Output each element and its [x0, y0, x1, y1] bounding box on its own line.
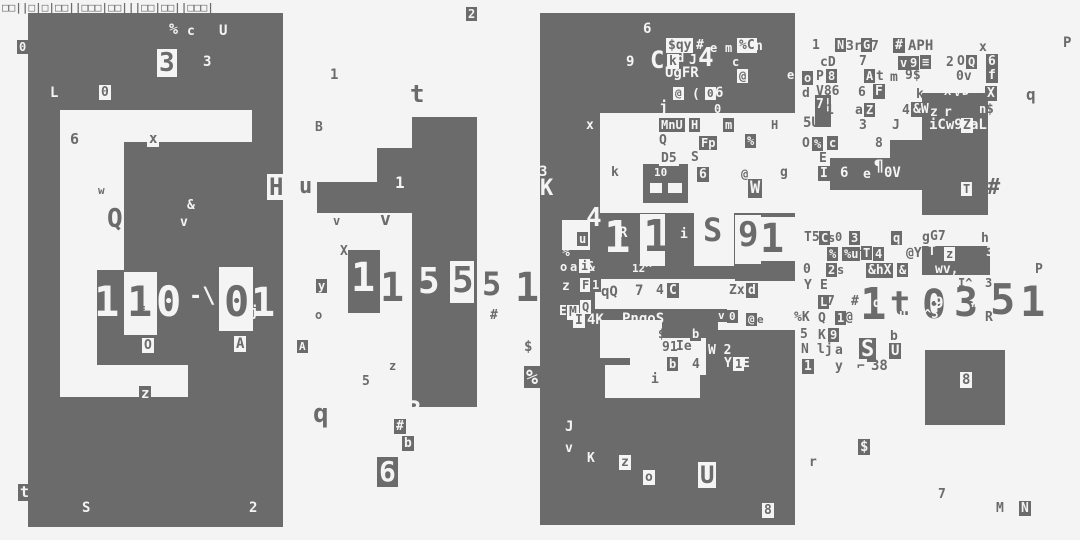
noise-glyph: 5: [362, 375, 370, 388]
noise-glyph: F: [873, 84, 885, 99]
noise-glyph: q: [891, 231, 902, 245]
noise-glyph: m: [725, 42, 732, 54]
noise-glyph: y: [735, 247, 742, 259]
noise-glyph: 1: [826, 104, 834, 117]
noise-glyph: o: [315, 309, 322, 321]
noise-glyph: 2: [826, 263, 837, 277]
noise-glyph: @: [845, 311, 853, 324]
noise-glyph: 1: [1020, 281, 1045, 323]
noise-glyph: 9: [828, 328, 839, 342]
noise-glyph: APH: [908, 39, 933, 53]
noise-glyph: @: [746, 313, 757, 326]
noise-glyph: c: [827, 136, 838, 150]
noise-glyph: 3: [859, 119, 867, 132]
noise-glyph: 8: [826, 69, 837, 83]
noise-glyph: #: [987, 177, 1000, 199]
noise-glyph: 0: [17, 40, 28, 54]
noise-glyph: F: [970, 177, 983, 199]
noise-glyph: lj: [817, 343, 833, 356]
noise-glyph: v: [380, 211, 391, 229]
noise-glyph: %: [169, 22, 178, 37]
noise-glyph: o: [802, 71, 813, 85]
noise-glyph: 7: [922, 215, 930, 228]
noise-glyph: ^3: [924, 308, 938, 320]
noise-glyph: 10: [654, 167, 667, 178]
noise-glyph: N: [801, 343, 809, 356]
noise-glyph: T: [861, 246, 872, 260]
noise-glyph: Q: [107, 206, 123, 232]
noise-glyph: %: [562, 246, 570, 259]
noise-glyph: %u: [842, 247, 860, 261]
noise-glyph: Y: [724, 357, 732, 370]
noise-glyph: %: [812, 137, 823, 151]
noise-block: [668, 183, 682, 193]
noise-glyph: aL: [970, 118, 987, 132]
noise-glyph: N: [1019, 501, 1031, 516]
noise-glyph: Ie: [676, 340, 692, 353]
noise-glyph: Zx: [729, 284, 745, 297]
noise-block: [377, 148, 477, 182]
noise-glyph: 0V: [884, 166, 901, 180]
noise-glyph: 8: [875, 137, 883, 150]
noise-glyph: E: [820, 279, 828, 292]
noise-glyph: t: [410, 82, 424, 106]
noise-glyph: y: [316, 279, 327, 293]
noise-glyph: 8: [960, 372, 972, 388]
noise-glyph: R: [985, 311, 993, 324]
noise-glyph: %C: [737, 38, 757, 53]
noise-glyph: 12^: [632, 263, 652, 274]
noise-glyph: &W: [911, 102, 931, 117]
noise-glyph: e: [863, 168, 871, 181]
noise-glyph: 1: [330, 68, 338, 82]
noise-block: [60, 270, 97, 397]
noise-glyph: #: [490, 309, 498, 322]
noise-glyph: Fp: [699, 136, 717, 150]
noise-glyph: v: [331, 214, 342, 228]
noise-glyph: 3: [986, 246, 994, 259]
noise-glyph: 8: [762, 503, 774, 518]
noise-glyph: 7: [827, 295, 835, 308]
noise-glyph: X: [340, 245, 348, 258]
noise-glyph: 7: [871, 40, 879, 53]
noise-glyph: 1: [760, 219, 784, 259]
noise-glyph: x: [586, 119, 594, 132]
noise-glyph: z: [944, 247, 955, 261]
noise-glyph: M: [996, 502, 1004, 515]
noise-glyph: ≡: [920, 55, 931, 69]
noise-glyph: g: [780, 166, 788, 179]
noise-glyph: 4: [698, 45, 714, 71]
noise-glyph: Q: [659, 134, 667, 147]
noise-glyph: 38: [871, 359, 888, 373]
noise-glyph: 1: [604, 216, 631, 260]
noise-glyph: d: [873, 297, 881, 310]
noise-glyph: P: [1063, 36, 1071, 50]
noise-glyph: 3: [157, 49, 177, 77]
noise-glyph: 4: [586, 205, 602, 231]
noise-glyph: 2: [249, 501, 257, 515]
noise-glyph: (: [692, 88, 700, 101]
noise-glyph: a: [855, 104, 863, 117]
noise-glyph: G7: [930, 230, 946, 243]
noise-glyph: m: [890, 71, 898, 84]
noise-glyph: 6: [377, 457, 398, 487]
noise-glyph: O: [957, 55, 965, 68]
noise-collage: □□||□|□|□□||□□□|□□|||□□|□□||□□□|0%cU33L0…: [0, 0, 1080, 540]
noise-glyph: &: [187, 199, 195, 212]
noise-glyph: 4: [873, 247, 884, 261]
noise-glyph: C: [667, 283, 679, 298]
noise-glyph: X: [985, 86, 997, 101]
noise-glyph: 2: [466, 7, 477, 21]
noise-glyph: u: [299, 176, 312, 198]
noise-glyph: q: [313, 401, 329, 427]
noise-glyph: E: [559, 305, 567, 318]
noise-glyph: 5: [990, 279, 1015, 321]
noise-glyph: 6: [858, 86, 866, 99]
noise-glyph: 0: [224, 281, 249, 323]
noise-glyph: v: [954, 87, 961, 98]
noise-glyph: a: [451, 247, 458, 259]
noise-glyph: PngoS: [622, 312, 664, 326]
noise-glyph: t: [876, 70, 884, 83]
noise-glyph: qQ: [601, 285, 618, 299]
noise-glyph: 9$: [905, 69, 921, 82]
noise-glyph: wv,: [935, 263, 958, 276]
noise-glyph: iCw9: [929, 118, 963, 132]
noise-glyph: A: [864, 69, 875, 83]
noise-glyph: 2: [946, 56, 954, 69]
noise-glyph: 6: [986, 54, 998, 69]
noise-glyph: 3: [407, 398, 421, 422]
noise-glyph: x: [979, 41, 987, 54]
noise-glyph: 4: [902, 104, 910, 117]
noise-glyph: Q: [818, 312, 826, 325]
noise-glyph: ¶: [874, 158, 884, 174]
noise-glyph: z: [619, 455, 631, 470]
noise-glyph: q: [1026, 87, 1036, 103]
noise-glyph: i: [651, 373, 659, 386]
noise-glyph: 1: [812, 39, 820, 52]
noise-glyph: Y: [804, 279, 812, 292]
noise-glyph: c: [732, 56, 739, 68]
noise-glyph: I: [573, 313, 585, 328]
noise-glyph: 5: [800, 328, 808, 341]
noise-glyph: Q: [966, 55, 977, 69]
noise-glyph: v: [565, 442, 573, 455]
noise-glyph: 4: [692, 358, 700, 371]
noise-glyph: 7: [938, 488, 946, 501]
noise-glyph: &hX: [866, 263, 893, 278]
noise-glyph: 1: [643, 215, 670, 259]
noise-glyph: u: [577, 232, 588, 246]
noise-glyph: S: [82, 501, 90, 515]
noise-glyph: U: [889, 343, 901, 359]
noise-glyph: %: [524, 366, 540, 388]
noise-glyph: $: [658, 328, 665, 340]
noise-glyph: @: [673, 87, 684, 100]
noise-glyph: h: [979, 231, 991, 246]
noise-glyph: #: [394, 419, 406, 434]
noise-glyph: T: [928, 245, 936, 258]
noise-glyph: $: [524, 340, 532, 354]
noise-glyph: t: [18, 484, 31, 501]
noise-glyph: C: [650, 48, 664, 72]
noise-glyph: i: [680, 228, 688, 241]
noise-glyph: 5: [418, 264, 440, 300]
noise-glyph: 5: [482, 268, 501, 300]
noise-glyph: A: [234, 336, 246, 352]
noise-glyph: H: [689, 118, 700, 132]
noise-glyph: @: [737, 69, 748, 83]
noise-glyph: J: [565, 420, 573, 434]
noise-glyph: b: [402, 436, 414, 451]
noise-glyph: A: [297, 340, 308, 353]
noise-glyph: -\: [189, 286, 216, 308]
noise-glyph: E: [742, 357, 750, 370]
noise-glyph: k: [611, 166, 619, 179]
noise-glyph: #: [851, 295, 859, 308]
noise-glyph: a: [835, 344, 843, 357]
noise-glyph: $: [858, 439, 870, 455]
noise-glyph: 6: [840, 166, 848, 180]
noise-glyph: 6: [68, 131, 81, 148]
noise-glyph: N: [835, 38, 846, 52]
noise-glyph: #: [893, 38, 905, 53]
noise-block: [650, 183, 662, 193]
noise-glyph: cD: [820, 56, 836, 69]
noise-glyph: W: [748, 179, 762, 198]
noise-glyph: H: [771, 119, 778, 131]
noise-glyph: 0: [714, 103, 721, 115]
noise-glyph: b: [667, 357, 678, 371]
noise-glyph: r: [809, 456, 817, 469]
noise-glyph: m: [723, 118, 734, 132]
noise-glyph: e: [787, 69, 794, 81]
noise-glyph: I: [818, 166, 830, 181]
noise-glyph: $: [986, 103, 994, 116]
noise-glyph: k: [916, 88, 924, 101]
noise-glyph: E: [819, 152, 827, 165]
noise-glyph: 0v: [956, 70, 972, 83]
noise-glyph: 0: [156, 281, 181, 323]
noise-glyph: D5: [659, 151, 679, 166]
noise-glyph: H: [267, 174, 285, 200]
noise-glyph: 3r: [846, 40, 862, 53]
noise-glyph: J: [892, 119, 900, 132]
noise-glyph: 7: [635, 284, 643, 298]
noise-glyph: 1: [395, 175, 405, 191]
noise-glyph: 0: [727, 310, 738, 323]
noise-glyph: K: [587, 452, 595, 465]
noise-glyph: 6: [715, 86, 723, 100]
noise-glyph: MnU: [659, 118, 685, 132]
noise-glyph: y: [835, 360, 843, 373]
noise-glyph: 7: [859, 55, 867, 68]
noise-glyph: 6: [697, 167, 709, 182]
noise-glyph: x: [147, 131, 159, 147]
noise-glyph: UgFR: [665, 66, 699, 80]
noise-glyph: e: [757, 314, 764, 325]
noise-glyph: O: [142, 338, 154, 353]
noise-glyph: #: [748, 247, 755, 258]
noise-glyph: D: [962, 85, 969, 97]
noise-glyph: b: [890, 330, 898, 343]
noise-glyph: ⌐: [855, 359, 867, 374]
noise-glyph: z: [562, 280, 570, 293]
noise-glyph: 1: [802, 359, 814, 374]
noise-glyph: 5: [452, 263, 474, 299]
noise-glyph: v: [716, 309, 727, 322]
noise-glyph: %: [745, 134, 756, 148]
noise-glyph: @Yr: [906, 247, 929, 260]
noise-glyph: f: [986, 68, 998, 83]
noise-glyph: 1: [94, 281, 119, 323]
noise-glyph: d: [802, 87, 810, 100]
noise-glyph: c: [187, 25, 195, 38]
noise-glyph: 4: [656, 284, 664, 297]
noise-glyph: □□||□|□|□□||□□□|□□|||□□|□□||□□□|: [2, 2, 214, 13]
noise-glyph: 4K: [587, 313, 604, 327]
noise-glyph: 9: [626, 55, 634, 69]
noise-glyph: Z: [864, 103, 875, 117]
noise-glyph: f: [138, 306, 146, 319]
noise-glyph: 6: [643, 22, 651, 36]
noise-glyph: w: [904, 279, 911, 290]
noise-glyph: %: [827, 247, 838, 261]
noise-glyph: &: [587, 261, 595, 274]
noise-glyph: P: [1035, 263, 1043, 276]
noise-glyph: 0: [803, 263, 811, 276]
noise-glyph: 1: [590, 278, 601, 292]
noise-glyph: K: [540, 178, 553, 200]
noise-glyph: d: [746, 283, 758, 298]
noise-glyph: o: [560, 261, 567, 273]
noise-glyph: L: [50, 86, 58, 100]
noise-glyph: K: [818, 329, 826, 342]
noise-glyph: w: [98, 185, 105, 196]
noise-glyph: 1: [351, 258, 375, 298]
noise-glyph: j: [659, 100, 668, 115]
noise-glyph: O: [802, 137, 810, 150]
noise-glyph: %K: [794, 311, 810, 324]
noise-glyph: #|: [971, 297, 987, 310]
noise-glyph: n: [755, 40, 763, 53]
noise-glyph: 3: [203, 55, 211, 69]
noise-glyph: &: [897, 263, 908, 277]
noise-glyph: S: [703, 214, 722, 246]
noise-glyph: S: [691, 151, 699, 164]
noise-glyph: T5: [804, 231, 820, 244]
noise-glyph: o: [643, 470, 655, 485]
noise-glyph: u: [899, 308, 906, 320]
noise-glyph: 1: [515, 268, 539, 308]
noise-glyph: P: [816, 70, 824, 83]
noise-glyph: X: [944, 85, 951, 97]
noise-glyph: z: [139, 386, 151, 402]
noise-glyph: B: [315, 121, 323, 134]
noise-glyph: z: [387, 359, 398, 373]
noise-glyph: 0: [835, 231, 842, 243]
noise-glyph: a: [570, 261, 577, 273]
noise-glyph: 1: [380, 268, 404, 308]
noise-glyph: 5U: [803, 116, 820, 130]
noise-glyph: s: [837, 264, 844, 276]
noise-glyph: d: [677, 52, 684, 64]
noise-glyph: r: [945, 310, 952, 322]
noise-glyph: 0: [99, 85, 111, 100]
noise-glyph: U: [698, 462, 716, 488]
noise-glyph: g: [922, 231, 930, 244]
noise-glyph: U: [219, 24, 227, 38]
noise-glyph: v: [180, 216, 188, 229]
noise-glyph: j: [250, 305, 258, 319]
